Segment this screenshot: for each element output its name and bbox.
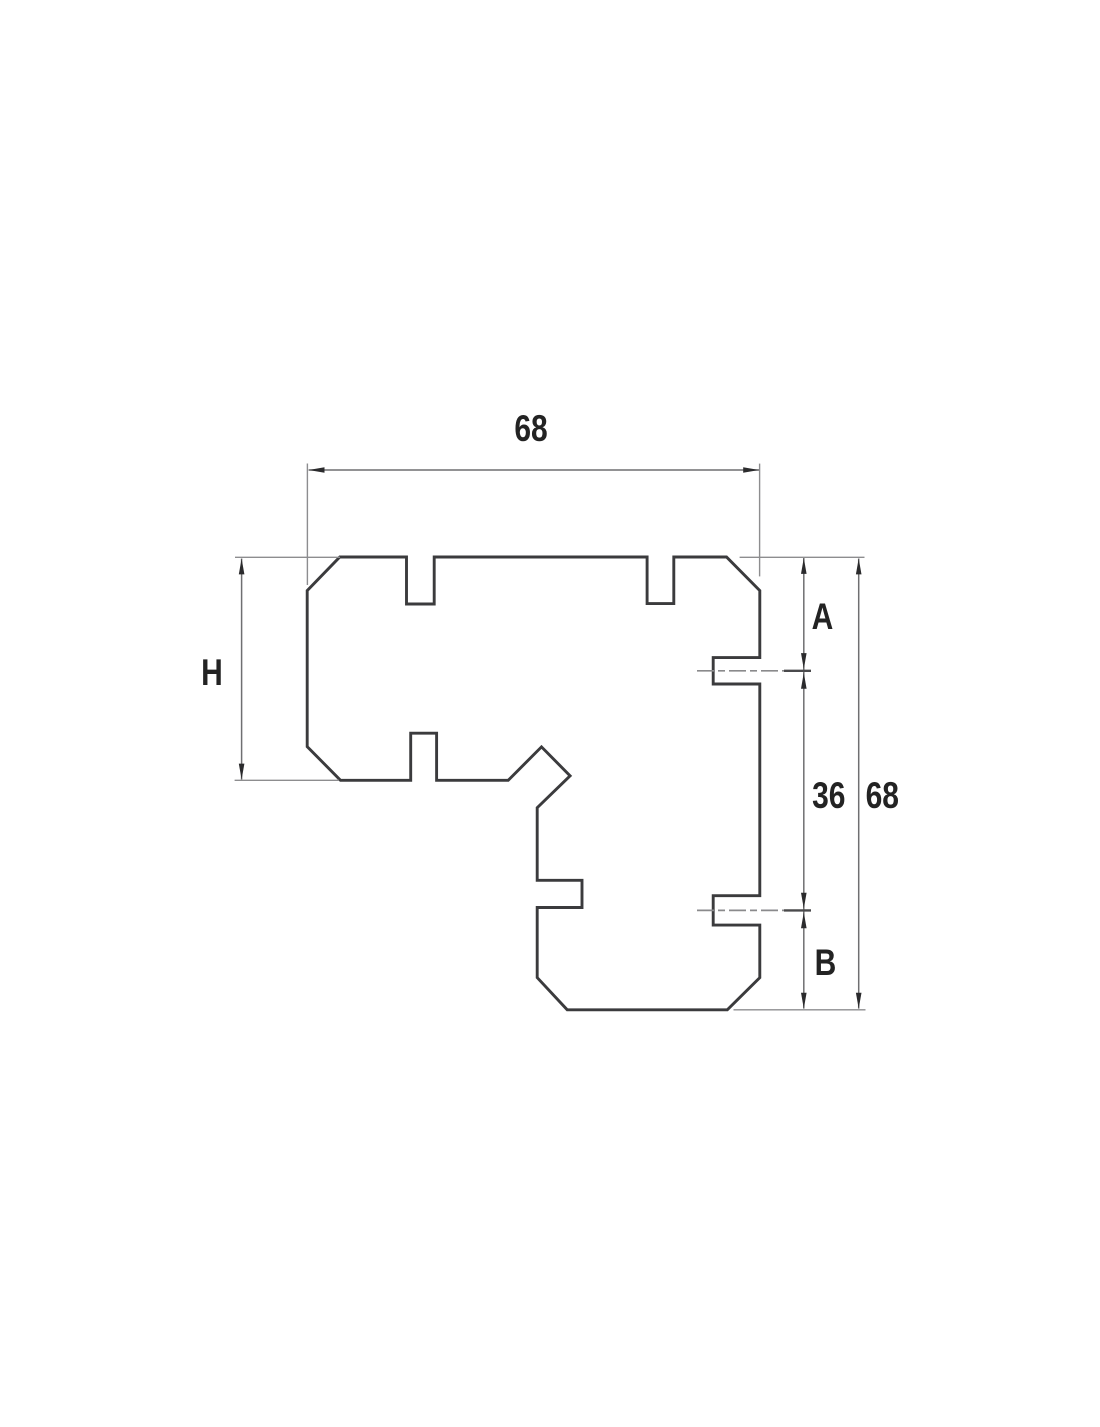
svg-text:A: A <box>812 596 834 638</box>
svg-text:36: 36 <box>812 775 845 817</box>
svg-text:B: B <box>815 942 837 984</box>
svg-text:68: 68 <box>514 408 547 450</box>
svg-text:H: H <box>201 652 223 694</box>
svg-text:68: 68 <box>866 775 899 817</box>
